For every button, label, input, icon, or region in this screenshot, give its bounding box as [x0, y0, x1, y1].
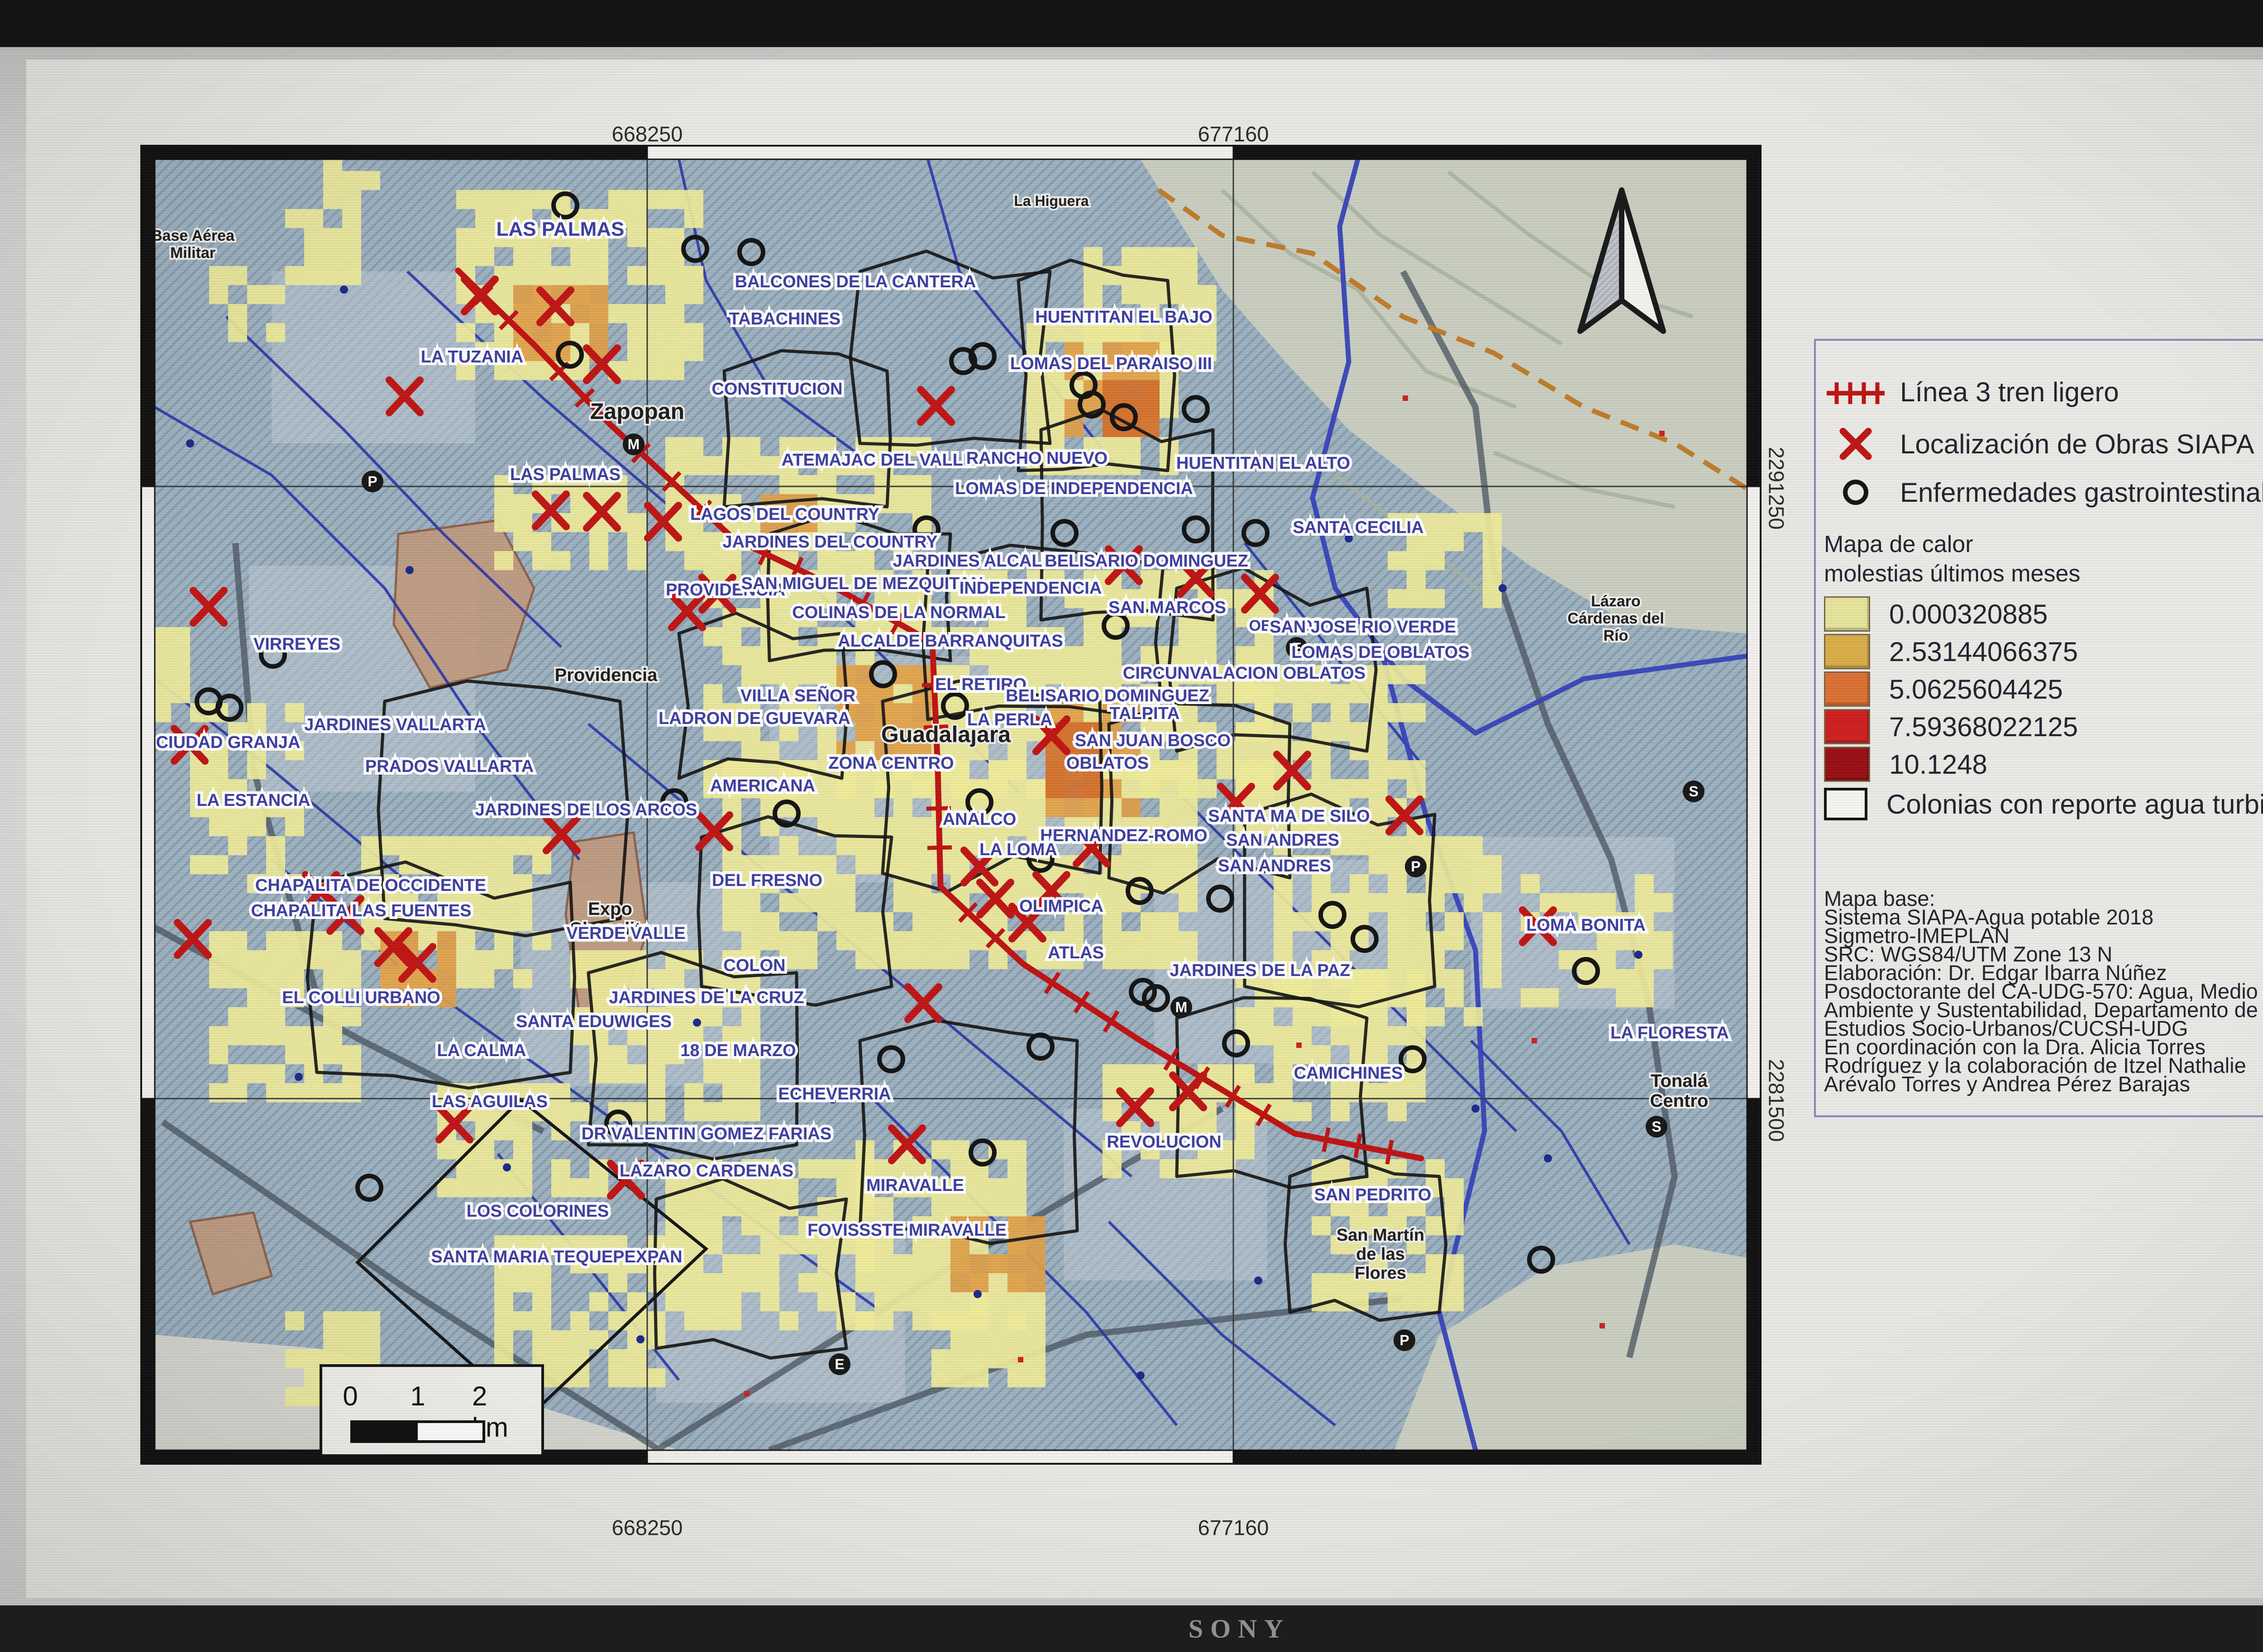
heat-cell	[1597, 950, 1616, 969]
heat-cell	[551, 1159, 570, 1178]
heat-cell	[1103, 1102, 1122, 1121]
base-map-label: San Martín	[1337, 1226, 1424, 1245]
heat-cell	[171, 627, 190, 646]
heat-cell	[684, 323, 703, 342]
heat-cell	[342, 228, 361, 247]
heat-cell	[760, 1254, 779, 1273]
colonia-label: BELISARIO DOMINGUEZ	[1045, 552, 1248, 571]
colonia-label: CAMICHINES	[1294, 1064, 1403, 1083]
heat-cell	[247, 1064, 266, 1083]
heat-cell	[874, 1311, 893, 1330]
heat-cell	[703, 1273, 722, 1292]
heat-cell	[1084, 627, 1103, 646]
heat-cell	[456, 855, 475, 874]
heat-cell	[855, 950, 874, 969]
heat-cell	[950, 779, 969, 798]
colonia-label: OBLATOS	[1066, 754, 1149, 773]
heat-cell	[627, 969, 646, 988]
heat-cell	[1084, 874, 1103, 893]
heat-cell	[323, 228, 342, 247]
heat-cell	[1369, 779, 1388, 798]
heat-cell	[760, 1292, 779, 1311]
colonias-outline-swatch	[1824, 788, 1867, 820]
heat-cell	[1065, 798, 1084, 817]
heat-cell	[1635, 969, 1654, 988]
heat-cell	[703, 1064, 722, 1083]
heat-cell	[760, 931, 779, 950]
heat-cell	[646, 304, 665, 323]
heat-cell	[285, 266, 304, 285]
heat-cell	[684, 285, 703, 304]
heat-cell	[1122, 931, 1141, 950]
valve-dot	[1136, 1371, 1145, 1380]
heat-cell	[1445, 988, 1464, 1007]
heat-cell	[209, 1026, 228, 1045]
heat-cell	[589, 551, 608, 570]
heat-cell	[1141, 399, 1160, 418]
heat-cell	[703, 1292, 722, 1311]
heat-cell	[1236, 741, 1255, 760]
heat-cell	[1369, 969, 1388, 988]
colonia-label: JARDINES DE LA PAZ	[1170, 961, 1350, 980]
heat-cell	[513, 1273, 532, 1292]
heat-cell	[1122, 437, 1141, 456]
heat-cell	[893, 836, 912, 855]
valve-dot	[340, 286, 348, 294]
colonia-label: SAN ANDRES	[1226, 831, 1339, 850]
valve-dot	[1634, 951, 1642, 959]
heat-cell	[836, 893, 855, 912]
heat-cell	[836, 836, 855, 855]
heat-cell	[1141, 779, 1160, 798]
heat-cell	[1331, 1273, 1350, 1292]
heat-cell	[988, 950, 1007, 969]
heat-cell	[1559, 893, 1578, 912]
heat-cell	[1483, 969, 1502, 988]
outline-legend-row: Colonias con reporte agua turbia	[1824, 788, 2263, 820]
train-tick	[927, 847, 952, 848]
heat-cell	[817, 1292, 836, 1311]
heat-cell	[1026, 1330, 1046, 1349]
heat-cell	[1065, 665, 1084, 684]
colonia-label: VILLA SEÑOR	[740, 686, 855, 705]
heat-cell	[1407, 931, 1426, 950]
heat-cell	[228, 1083, 247, 1102]
heat-cell	[646, 1045, 665, 1064]
heat-cell	[456, 228, 475, 247]
heat-cell	[342, 1311, 361, 1330]
heat-cell	[627, 361, 646, 380]
red-dot	[1018, 1357, 1023, 1362]
heat-cell	[1369, 722, 1388, 741]
colonia-label: BELISARIO DOMINGUEZ	[1006, 686, 1209, 705]
heat-cell	[323, 247, 342, 266]
heat-cell	[646, 247, 665, 266]
heat-cell	[551, 551, 570, 570]
heat-cell	[722, 551, 741, 570]
colonia-label: PRADOS VALLARTA	[365, 757, 534, 776]
heat-cell	[1236, 1007, 1255, 1026]
heat-cell	[1426, 532, 1445, 551]
heat-cell	[1179, 1102, 1198, 1121]
heat-cell	[1369, 836, 1388, 855]
heat-cell	[1274, 1083, 1293, 1102]
heat-cell	[532, 1273, 551, 1292]
heat-cell	[760, 1235, 779, 1254]
heat-cell	[513, 969, 532, 988]
heat-cell	[1483, 570, 1502, 589]
heat-cell	[228, 304, 247, 323]
heat-cell	[399, 836, 418, 855]
heat-cell	[456, 1178, 475, 1197]
heat-cell	[1464, 893, 1483, 912]
heat-cell	[1065, 646, 1084, 665]
heat-cell	[760, 741, 779, 760]
heat-cell	[247, 1026, 266, 1045]
heat-cell	[988, 1197, 1007, 1216]
heat-cell	[1198, 627, 1217, 646]
colonia-label: SAN ANDRES	[1218, 857, 1331, 876]
heat-cell	[209, 285, 228, 304]
heat-cell	[323, 1083, 342, 1102]
heat-cell	[931, 1140, 950, 1159]
heat-cell	[1007, 1197, 1026, 1216]
heat-cell	[969, 1368, 988, 1387]
heat-cell	[475, 950, 494, 969]
heat-cell	[285, 1083, 304, 1102]
heat-cell	[1293, 1045, 1312, 1064]
heat-cell	[1255, 684, 1274, 703]
heat-cell	[266, 1026, 285, 1045]
heat-cell	[1141, 1064, 1160, 1083]
heat-cell	[722, 437, 741, 456]
heat-cell	[247, 988, 266, 1007]
colonia-label: COLON	[723, 956, 785, 975]
heat-cell	[1141, 380, 1160, 399]
heat-cell	[1350, 874, 1369, 893]
heat-cell	[1331, 1083, 1350, 1102]
heat-cell	[874, 475, 893, 494]
colonia-label: SANTA MARIA TEQUEPEXPAN	[431, 1247, 682, 1266]
grid-label-bottom-left: 668250	[612, 1515, 683, 1540]
heat-class-row: 0.000320885	[1824, 596, 2048, 632]
heat-cell	[893, 1254, 912, 1273]
heat-cell	[703, 1311, 722, 1330]
heat-cell	[1046, 380, 1065, 399]
heat-cell	[1141, 285, 1160, 304]
heat-cell	[912, 665, 931, 684]
heat-cell	[950, 1330, 969, 1349]
heat-cell	[969, 1197, 988, 1216]
heat-cell	[836, 779, 855, 798]
heat-cell	[304, 228, 323, 247]
heat-cell	[741, 931, 760, 950]
map-content: MEPMPSPESZapopanGuadalajaraTonaláCentroS…	[114, 152, 1747, 1450]
heat-cell	[342, 1045, 361, 1064]
heat-cell	[304, 1083, 323, 1102]
heat-cell	[532, 323, 551, 342]
heat-cell	[475, 855, 494, 874]
red-dot	[1599, 1323, 1605, 1328]
heat-cell	[684, 1292, 703, 1311]
base-map-label: Flores	[1355, 1264, 1406, 1283]
heat-cell	[1426, 1216, 1445, 1235]
colonia-label: DEL FRESNO	[712, 871, 822, 890]
colonia-label: LAS PALMAS	[510, 465, 621, 484]
heat-cell	[684, 437, 703, 456]
heat-cell	[551, 1178, 570, 1197]
heat-cell	[475, 209, 494, 228]
heat-cell	[285, 817, 304, 836]
legend-label-enfermedades: Enfermedades gastrointestinales	[1900, 477, 2263, 508]
heat-swatch-1	[1824, 596, 1870, 632]
heat-cell	[1350, 836, 1369, 855]
heat-cell	[228, 836, 247, 855]
heat-cell	[912, 836, 931, 855]
heat-cell	[798, 798, 817, 817]
layout-page: MEPMPSPESZapopanGuadalajaraTonaláCentroS…	[26, 60, 2263, 1598]
heat-cell	[342, 969, 361, 988]
heat-cell	[684, 190, 703, 209]
heat-cell	[1103, 893, 1122, 912]
colonia-label: CONSTITUCION	[711, 380, 842, 399]
heat-cell	[1007, 1140, 1026, 1159]
heat-cell	[513, 1140, 532, 1159]
heat-cell	[779, 931, 798, 950]
heat-cell	[608, 304, 627, 323]
heat-cell	[532, 551, 551, 570]
heat-cell	[1179, 798, 1198, 817]
heat-cell	[247, 285, 266, 304]
legend-box: Línea 3 tren ligero Localización de Obra…	[1814, 339, 2263, 1117]
neatline-segment	[141, 1099, 155, 1464]
heat-cell	[608, 1368, 627, 1387]
heatmap-title-1: Mapa de calor	[1824, 531, 1973, 558]
colonia-label: LA ESTANCIA	[196, 791, 310, 810]
heat-cell	[1445, 1254, 1464, 1273]
heat-cell	[836, 817, 855, 836]
heat-cell	[1046, 665, 1065, 684]
heat-cell	[1407, 589, 1426, 608]
heat-cell	[665, 342, 684, 361]
heat-cell	[589, 323, 608, 342]
heat-cell	[209, 1083, 228, 1102]
heat-cell	[893, 931, 912, 950]
heat-cell	[513, 893, 532, 912]
heat-cell	[1026, 1254, 1046, 1273]
heat-cell	[1331, 931, 1350, 950]
heat-cell	[1426, 836, 1445, 855]
heat-cell	[285, 950, 304, 969]
heat-cell	[684, 532, 703, 551]
heat-cell	[627, 342, 646, 361]
heat-cell	[1445, 912, 1464, 931]
heat-value-3: 5.0625604425	[1889, 674, 2063, 705]
colonia-label: COLINAS DE LA NORMAL	[792, 603, 1005, 622]
heat-cell	[1426, 950, 1445, 969]
heat-cell	[1407, 1083, 1426, 1102]
heat-cell	[1293, 1102, 1312, 1121]
station-letter: S	[1652, 1119, 1661, 1135]
base-map-label: Río	[1604, 627, 1628, 644]
heat-cell	[855, 798, 874, 817]
heat-cell	[874, 1292, 893, 1311]
heat-cell	[494, 836, 513, 855]
heat-cell	[722, 627, 741, 646]
station-letter: E	[835, 1356, 844, 1372]
heat-cell	[703, 1216, 722, 1235]
heat-cell	[703, 1102, 722, 1121]
base-map-label: Expo	[588, 899, 632, 919]
heat-cell	[1103, 912, 1122, 931]
heat-cell	[323, 1311, 342, 1330]
heat-cell	[665, 1292, 684, 1311]
heat-cell	[646, 190, 665, 209]
heat-cell	[665, 969, 684, 988]
heat-cell	[969, 1330, 988, 1349]
heat-cell	[589, 1292, 608, 1311]
heat-cell	[1350, 893, 1369, 912]
heat-cell	[684, 1273, 703, 1292]
heat-cell	[1160, 912, 1179, 931]
heat-cell	[494, 912, 513, 931]
heat-cell	[665, 1197, 684, 1216]
heat-cell	[513, 247, 532, 266]
heat-cell	[1179, 893, 1198, 912]
colonia-label: LOMAS DEL PARAISO III	[1010, 354, 1212, 373]
heat-cell	[855, 855, 874, 874]
heat-cell	[684, 266, 703, 285]
colonia-label: JARDINES DEL COUNTRY	[722, 533, 937, 552]
heat-cell	[342, 190, 361, 209]
heat-cell	[589, 285, 608, 304]
heat-cell	[1331, 722, 1350, 741]
heat-cell	[722, 1273, 741, 1292]
heat-cell	[266, 1007, 285, 1026]
grid-label-top-right: 677160	[1198, 122, 1269, 147]
heat-cell	[893, 779, 912, 798]
heat-cell	[361, 1311, 380, 1330]
heat-cell	[209, 1045, 228, 1064]
heat-cell	[1026, 665, 1046, 684]
heat-cell	[1597, 893, 1616, 912]
heat-cell	[1198, 285, 1217, 304]
heat-cell	[893, 475, 912, 494]
neatline-segment	[141, 146, 647, 159]
heat-cell	[285, 1045, 304, 1064]
colonia-label: LOMAS DE OBLATOS	[1291, 643, 1469, 662]
heat-cell	[836, 931, 855, 950]
heat-value-1: 0.000320885	[1889, 599, 2048, 630]
heat-cell	[1331, 703, 1350, 722]
heat-cell	[209, 855, 228, 874]
heat-cell	[456, 950, 475, 969]
heat-cell	[589, 304, 608, 323]
station-letter: M	[1175, 999, 1188, 1015]
colonia-label: LA FLORESTA	[1610, 1024, 1729, 1043]
heat-cell	[494, 1330, 513, 1349]
heat-cell	[342, 1330, 361, 1349]
heat-cell	[722, 646, 741, 665]
heat-cell	[931, 950, 950, 969]
heat-cell	[855, 912, 874, 931]
heat-cell	[969, 1273, 988, 1292]
heat-cell	[342, 247, 361, 266]
heat-cell	[684, 456, 703, 475]
north-arrow-icon	[1567, 182, 1676, 345]
colonia-label: AMERICANA	[710, 776, 815, 795]
heat-cell	[1179, 931, 1198, 950]
heat-cell	[456, 190, 475, 209]
heat-cell	[1179, 855, 1198, 874]
heat-cell	[1616, 988, 1635, 1007]
heat-cell	[589, 1064, 608, 1083]
heat-cell	[646, 342, 665, 361]
heat-cell	[684, 209, 703, 228]
heat-cell	[893, 703, 912, 722]
heat-cell	[209, 817, 228, 836]
heat-cell	[1426, 551, 1445, 570]
heat-cell	[741, 437, 760, 456]
heat-cell	[1388, 1083, 1407, 1102]
heat-cell	[703, 1197, 722, 1216]
heat-cell	[190, 855, 209, 874]
scale-bar: 0 1 2 km	[320, 1364, 544, 1457]
colonia-label: ATEMAJAC DEL VALLE	[782, 451, 974, 470]
heat-cell	[589, 1178, 608, 1197]
heat-cell	[551, 1083, 570, 1102]
heat-cell	[285, 1026, 304, 1045]
heat-cell	[228, 950, 247, 969]
heat-cell	[475, 969, 494, 988]
heat-cell	[1521, 988, 1540, 1007]
heat-cell	[874, 1273, 893, 1292]
valve-dot	[406, 566, 414, 574]
heat-cell	[551, 1368, 570, 1387]
heat-cell	[874, 1197, 893, 1216]
heat-cell	[418, 836, 437, 855]
heat-cell	[494, 494, 513, 513]
heat-cell	[1026, 779, 1046, 798]
heat-cell	[988, 760, 1007, 779]
heat-cell	[1103, 380, 1122, 399]
heat-cell	[703, 684, 722, 703]
heat-cell	[1445, 1197, 1464, 1216]
heat-cell	[513, 266, 532, 285]
heat-cell	[684, 1311, 703, 1330]
heat-cell	[1388, 855, 1407, 874]
heat-cell	[855, 779, 874, 798]
heat-cell	[722, 1083, 741, 1102]
heat-cell	[1293, 703, 1312, 722]
heat-cell	[608, 969, 627, 988]
heat-cell	[855, 1254, 874, 1273]
heat-cell	[969, 931, 988, 950]
base-map-label: La Higuera	[1014, 193, 1089, 209]
heat-cell	[741, 1197, 760, 1216]
heat-cell	[1388, 836, 1407, 855]
heat-cell	[1141, 570, 1160, 589]
heat-cell	[342, 1083, 361, 1102]
heat-cell	[722, 1311, 741, 1330]
heat-cell	[513, 1311, 532, 1330]
neatline-segment	[647, 146, 1233, 159]
colonia-label: TALPITA	[1110, 704, 1180, 723]
heat-cell	[1578, 893, 1597, 912]
heat-cell	[266, 285, 285, 304]
legend-label-train: Línea 3 tren ligero	[1900, 376, 2119, 408]
heat-cell	[931, 1292, 950, 1311]
